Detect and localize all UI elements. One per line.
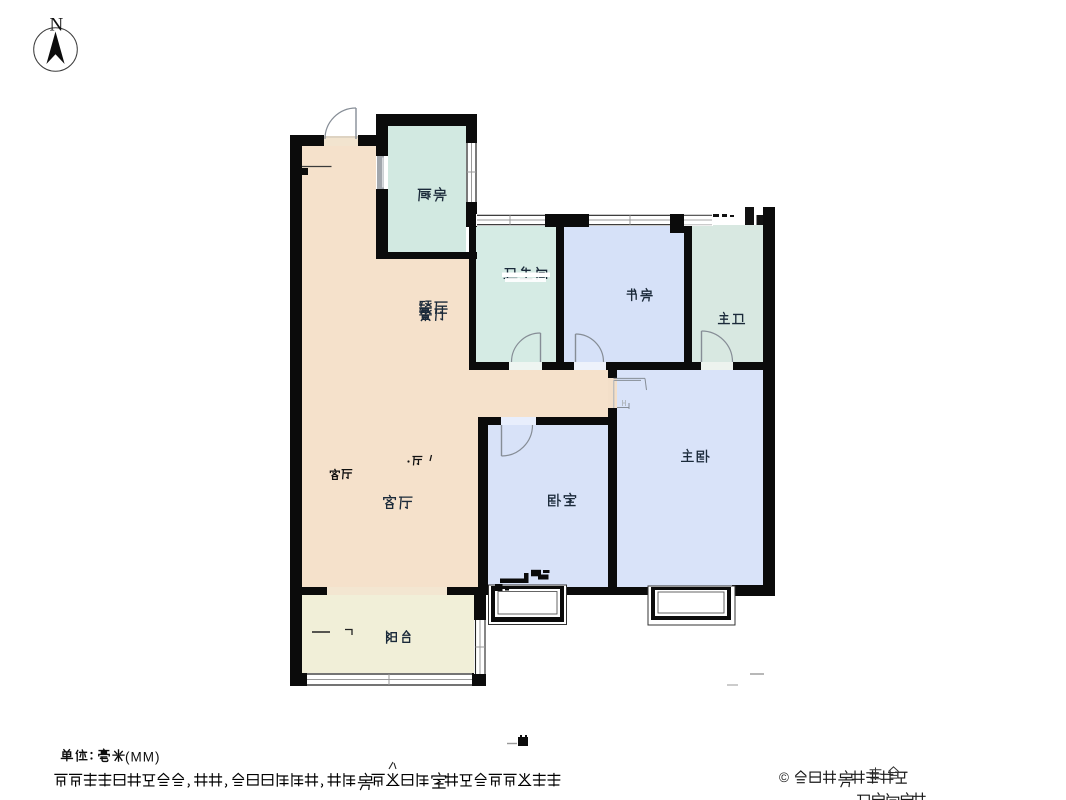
svg-text:(MM): (MM) [125,750,160,765]
svg-text:©: © [779,770,789,785]
svg-text:N: N [50,15,64,36]
